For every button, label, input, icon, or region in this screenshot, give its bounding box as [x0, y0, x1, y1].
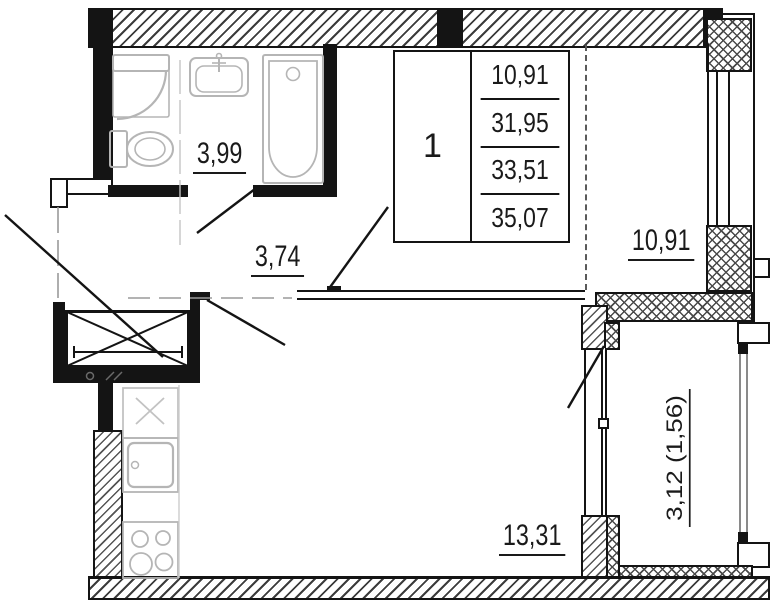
living-room-area-label: 10,91 — [628, 226, 694, 261]
hallway-area-label: 3,74 — [251, 242, 304, 277]
sink — [190, 54, 248, 97]
drawing-layer — [0, 0, 773, 600]
leader-line-balcony-door — [568, 346, 604, 408]
entry-door-swing — [207, 300, 285, 345]
bathroom-area-label: 3,99 — [193, 139, 246, 174]
bathtub — [263, 55, 323, 183]
kitchen-sink — [123, 438, 178, 492]
balcony-area-label: 3,12 (1,56) — [663, 383, 690, 533]
shaft-tick-marks — [87, 372, 123, 380]
area-row-total: 33,51 — [481, 146, 560, 194]
floor-plan: 1 10,91 31,95 33,51 35,07 3,99 3,74 10,9… — [0, 0, 773, 600]
shower-cabin — [113, 55, 169, 119]
stove — [123, 522, 178, 578]
area-row-residential: 31,95 — [481, 98, 560, 146]
kitchen-appliance-slot — [123, 388, 178, 438]
shaft-cross-icon — [67, 312, 188, 366]
apartment-number: 1 — [395, 52, 472, 241]
area-row-living: 10,91 — [481, 52, 560, 98]
leader-line-hallway — [328, 207, 388, 290]
area-row-total-with-balcony: 35,07 — [481, 193, 560, 241]
info-table: 1 10,91 31,95 33,51 35,07 — [393, 50, 570, 243]
bathroom-door-swing — [197, 189, 255, 233]
toilet — [110, 131, 173, 167]
leader-line-entry — [5, 215, 163, 357]
kitchen-area-label: 13,31 — [499, 521, 565, 556]
